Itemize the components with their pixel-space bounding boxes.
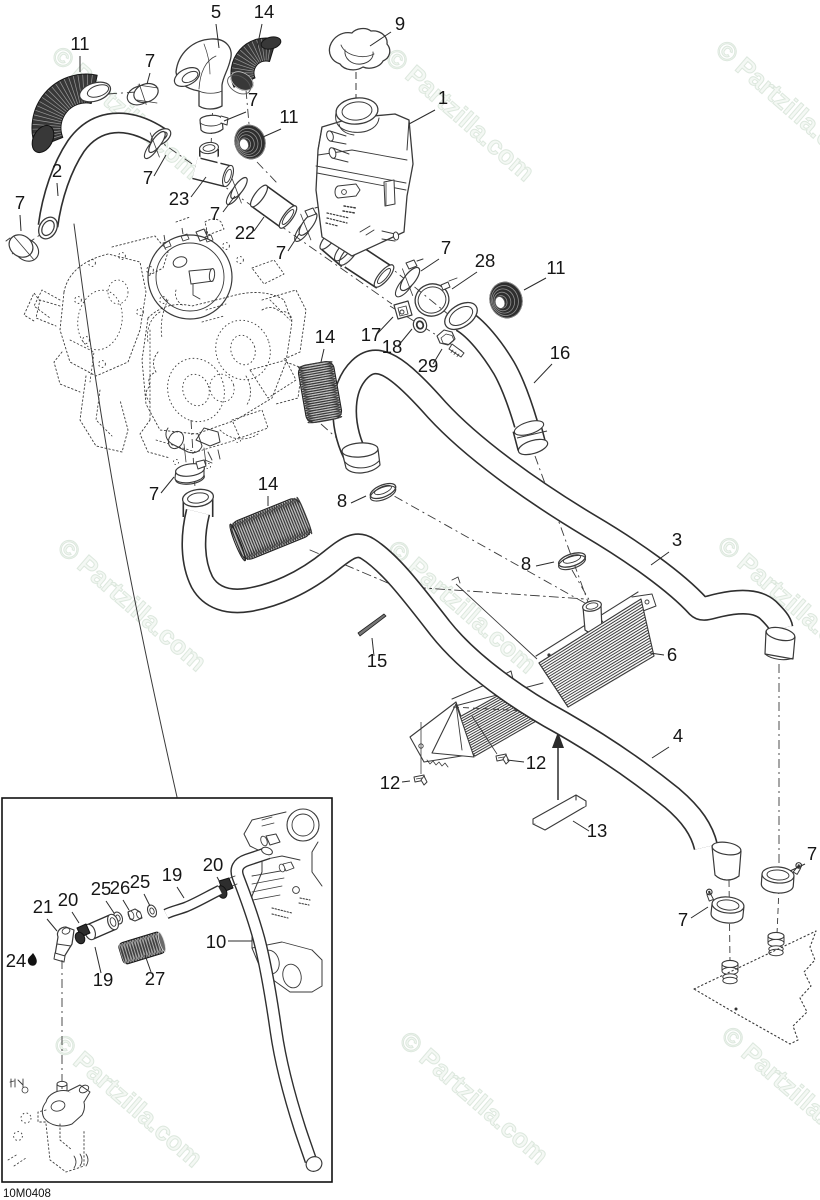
svg-text:11: 11 [546,257,565,278]
svg-text:7: 7 [143,167,153,188]
svg-text:26: 26 [110,877,131,898]
svg-text:25: 25 [130,871,151,892]
svg-text:6: 6 [667,644,677,665]
svg-text:14: 14 [315,326,336,347]
svg-text:16: 16 [550,342,571,363]
svg-text:9: 9 [395,13,405,34]
svg-text:7: 7 [248,89,258,110]
svg-text:27: 27 [145,968,166,989]
svg-text:25: 25 [91,878,112,899]
svg-text:2: 2 [52,160,62,181]
svg-text:12: 12 [380,772,401,793]
svg-text:19: 19 [93,969,114,990]
svg-text:18: 18 [382,336,403,357]
svg-text:1: 1 [438,87,448,108]
svg-text:3: 3 [672,529,682,550]
svg-text:20: 20 [203,854,224,875]
svg-text:12: 12 [526,752,547,773]
svg-text:17: 17 [361,324,382,345]
svg-text:8: 8 [521,553,531,574]
svg-text:7: 7 [276,242,286,263]
svg-text:21: 21 [33,896,54,917]
svg-text:7: 7 [15,192,25,213]
svg-text:24: 24 [6,950,27,971]
svg-text:4: 4 [673,725,683,746]
svg-text:11: 11 [279,106,298,127]
svg-text:13: 13 [587,820,608,841]
svg-text:7: 7 [210,203,220,224]
svg-text:19: 19 [162,864,183,885]
svg-text:7: 7 [441,237,451,258]
svg-text:7: 7 [149,483,159,504]
svg-text:5: 5 [211,1,221,22]
svg-text:7: 7 [807,843,817,864]
svg-text:23: 23 [169,188,190,209]
svg-text:14: 14 [258,473,279,494]
svg-text:29: 29 [418,355,439,376]
svg-text:20: 20 [58,889,79,910]
svg-text:15: 15 [367,650,388,671]
svg-text:10M0408: 10M0408 [3,1188,51,1200]
svg-text:28: 28 [475,250,496,271]
svg-text:22: 22 [235,222,256,243]
svg-text:11: 11 [70,33,89,54]
svg-text:7: 7 [145,50,155,71]
svg-text:8: 8 [337,490,347,511]
svg-text:14: 14 [254,1,275,22]
svg-text:7: 7 [678,909,688,930]
svg-text:10: 10 [206,931,227,952]
